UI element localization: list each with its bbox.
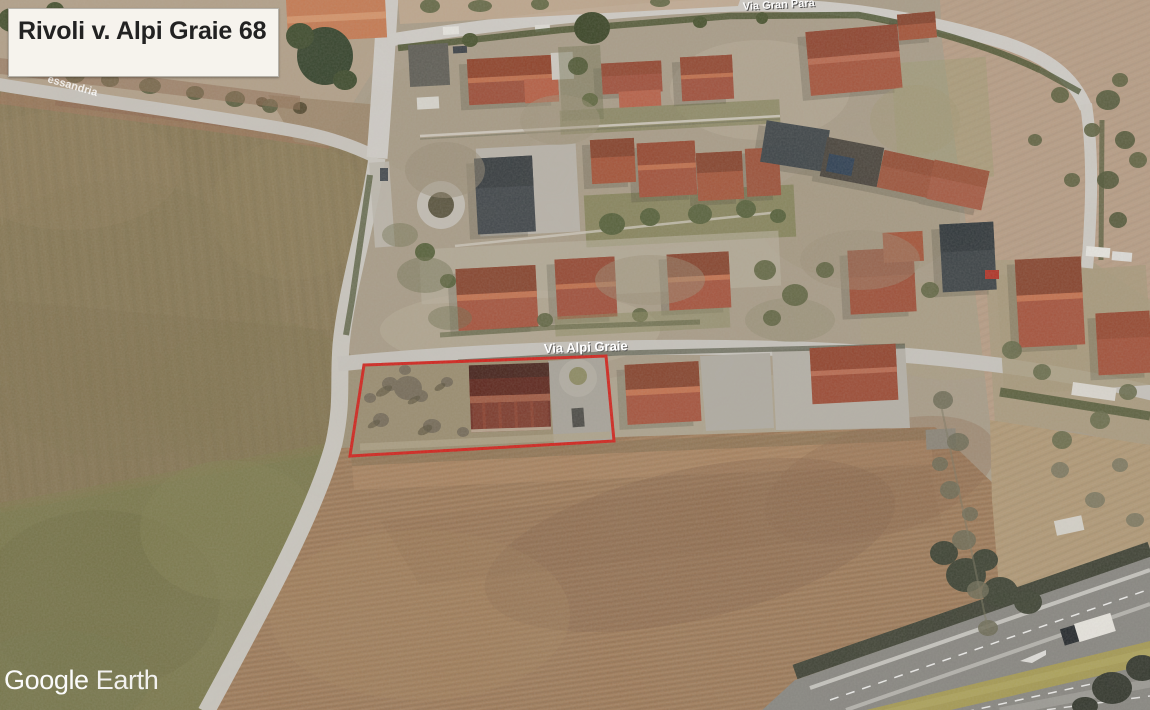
- svg-text:Via Alpi Graie: Via Alpi Graie: [544, 338, 628, 356]
